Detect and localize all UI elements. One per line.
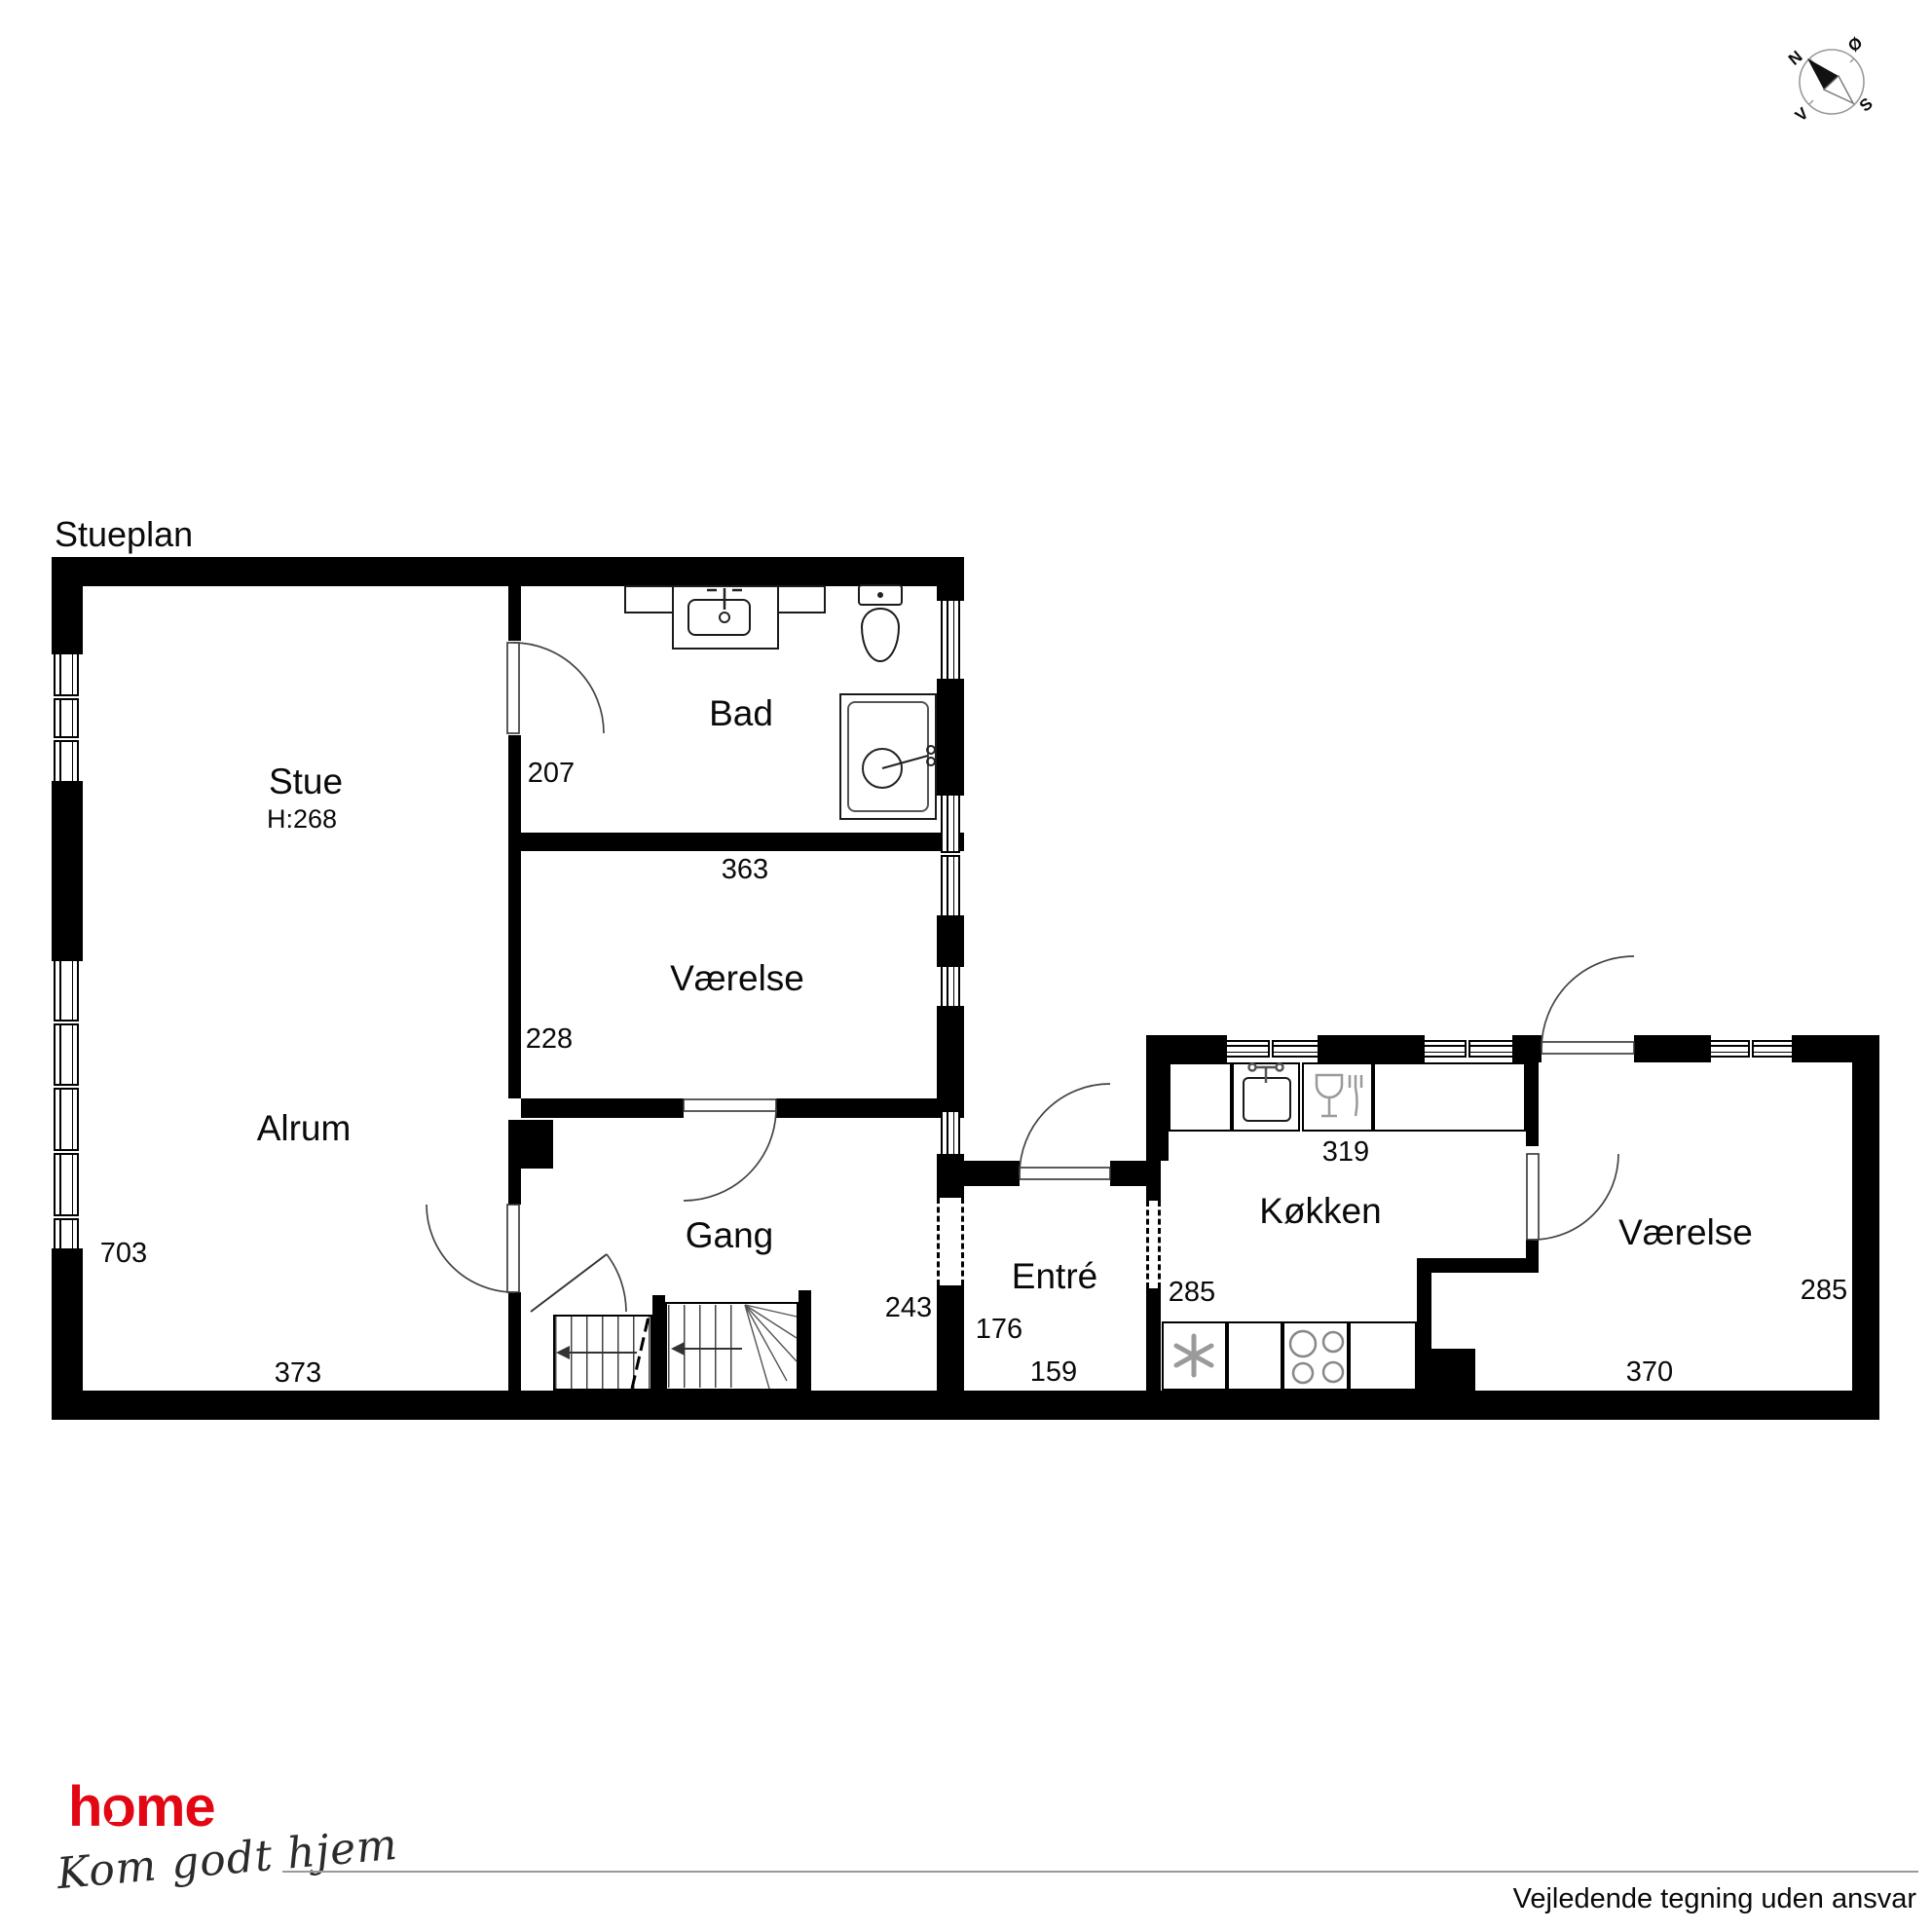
compass-needle-north <box>1807 58 1839 90</box>
wall <box>1526 1062 1539 1146</box>
dishwasher-unit <box>1302 1062 1373 1132</box>
door-arc <box>607 1254 626 1312</box>
wall <box>937 557 964 601</box>
open-passage-gang-entre <box>937 1198 964 1285</box>
wall <box>52 586 83 654</box>
compass-west-label: V <box>1792 104 1813 127</box>
dim-alrum-left: 703 <box>100 1238 147 1270</box>
keyhole-icon <box>109 1809 123 1822</box>
door-leaf <box>507 643 519 733</box>
window <box>941 1112 960 1154</box>
freezer-unit <box>1162 1321 1227 1391</box>
room-label-bad: Bad <box>709 693 773 734</box>
wall <box>1318 1035 1425 1062</box>
wall <box>1417 1349 1475 1391</box>
footer-disclaimer: Vejledende tegning uden ansvar <box>1513 1883 1916 1915</box>
window <box>941 967 960 1006</box>
wall <box>508 735 521 836</box>
open-passage-entre-koekken <box>1146 1201 1161 1288</box>
kitchen-counter <box>1349 1321 1417 1391</box>
window-mullion <box>1268 1040 1274 1058</box>
door-leaf <box>1542 1042 1634 1054</box>
door-arc <box>1542 956 1634 1049</box>
stairs-direction-arrow <box>684 1348 742 1350</box>
window <box>941 601 960 679</box>
wall <box>508 1120 553 1169</box>
wall <box>937 915 964 967</box>
room-label-alrum: Alrum <box>257 1108 352 1149</box>
wall <box>1852 1035 1879 1420</box>
room-label-gang: Gang <box>686 1215 774 1256</box>
page-title: Stueplan <box>55 514 193 555</box>
wall <box>1512 1035 1542 1062</box>
room-height-stue: H:268 <box>267 804 337 835</box>
wall <box>1110 1161 1161 1186</box>
window <box>54 961 79 1248</box>
wall <box>508 586 521 641</box>
wall <box>52 1391 1879 1420</box>
dim-alrum-bottom: 373 <box>275 1357 321 1390</box>
wall <box>52 781 83 961</box>
wall <box>799 1290 811 1391</box>
window-mullion <box>54 694 79 700</box>
wall <box>652 1295 665 1391</box>
window-mullion <box>54 1214 79 1220</box>
dim-entre-koekken: 285 <box>1169 1277 1215 1309</box>
dim-bad-left: 207 <box>528 758 575 790</box>
kitchen-counter <box>1227 1321 1282 1391</box>
room-label-koekken: Køkken <box>1259 1191 1381 1232</box>
wall <box>937 1285 964 1391</box>
compass-needle-south <box>1824 76 1853 103</box>
door-arc <box>1533 1154 1618 1240</box>
floor-plan-page: Stueplan <box>0 0 1932 1932</box>
wall <box>1417 1258 1539 1273</box>
home-logo: home <box>68 1774 215 1839</box>
shower-tray-inner <box>847 701 929 812</box>
room-label-vaerelse-right: Værelse <box>1618 1212 1753 1253</box>
stove-unit <box>1282 1321 1349 1391</box>
window-mullion <box>941 851 960 857</box>
wall <box>521 1098 684 1118</box>
window-mullion <box>54 1149 79 1155</box>
wall <box>508 1292 521 1391</box>
wall <box>521 833 964 851</box>
wall <box>937 1161 1020 1186</box>
door-arc <box>1020 1084 1110 1174</box>
door-leaf <box>1527 1154 1539 1240</box>
window-mullion <box>1748 1040 1754 1058</box>
room-label-vaerelse-left: Værelse <box>670 958 804 999</box>
wall <box>508 1169 521 1205</box>
kitchen-counter <box>1373 1062 1526 1132</box>
stairs-direction-arrow <box>569 1352 637 1354</box>
toilet-tank-icon <box>858 584 903 606</box>
wall <box>937 1006 964 1112</box>
wall <box>52 557 964 586</box>
window <box>54 654 79 781</box>
door-arc <box>513 643 604 733</box>
wall <box>1146 1288 1161 1391</box>
wall <box>52 1248 83 1391</box>
wall <box>508 836 521 1098</box>
room-label-entre: Entré <box>1012 1256 1097 1297</box>
window-mullion <box>1465 1040 1470 1058</box>
dim-vaerelse-right-bottom: 370 <box>1626 1356 1673 1389</box>
door-arc <box>684 1108 776 1201</box>
window-mullion <box>54 1020 79 1025</box>
wall <box>1146 1186 1161 1201</box>
footer-divider <box>282 1871 1918 1873</box>
dim-koekken-top: 319 <box>1322 1136 1369 1169</box>
dim-entre-bottom: 159 <box>1030 1356 1077 1389</box>
bath-sink-icon <box>687 599 751 636</box>
door-leaf <box>684 1099 776 1111</box>
window-mullion <box>54 736 79 742</box>
kitchen-sink-basin <box>1243 1077 1291 1122</box>
dim-vaerelse-right-side: 285 <box>1801 1275 1847 1307</box>
window-mullion <box>54 1084 79 1090</box>
dim-entre-left: 176 <box>976 1314 1022 1346</box>
wall <box>937 679 964 796</box>
dim-gang-right: 243 <box>885 1292 932 1324</box>
toilet-bowl-icon <box>861 608 900 662</box>
compass-icon <box>1800 50 1864 114</box>
compass-north-label: N <box>1785 47 1806 69</box>
door-leaf <box>507 1205 519 1292</box>
compass-south-label: S <box>1856 94 1877 117</box>
kitchen-counter <box>1169 1062 1232 1132</box>
wall <box>1146 1035 1169 1161</box>
dim-bad-width: 363 <box>722 854 768 886</box>
wall <box>1526 1240 1539 1258</box>
compass-east-label: Ø <box>1844 33 1867 56</box>
room-label-stue: Stue <box>269 762 343 802</box>
door-leaf <box>531 1254 607 1312</box>
wall <box>1634 1035 1711 1062</box>
door-leaf <box>1020 1168 1110 1179</box>
door-arc <box>427 1205 514 1292</box>
plan-overlay <box>0 0 1932 1932</box>
dim-vaerelse-left: 228 <box>526 1023 573 1056</box>
